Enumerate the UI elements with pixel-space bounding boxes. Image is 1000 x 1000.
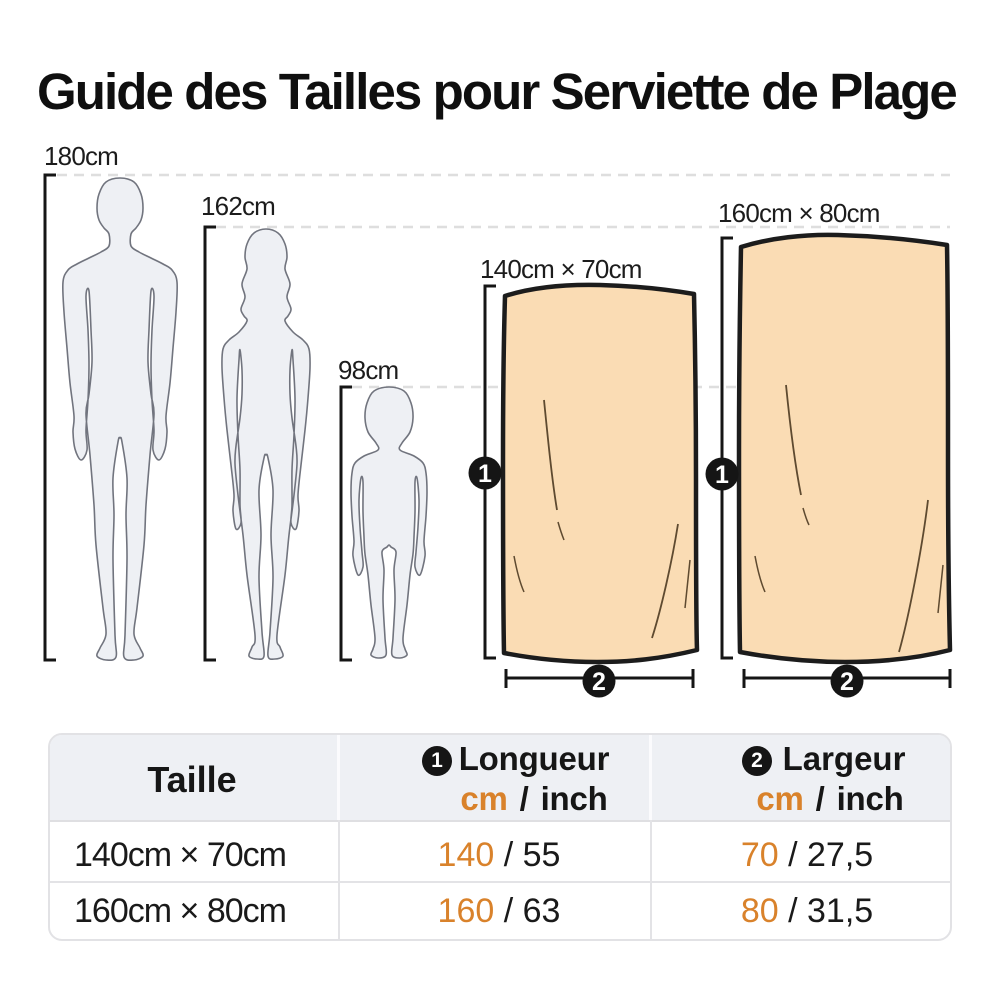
svg-text:2: 2 — [840, 668, 854, 696]
svg-text:1: 1 — [715, 461, 729, 489]
svg-text:2: 2 — [592, 668, 606, 696]
svg-text:1: 1 — [478, 460, 492, 488]
